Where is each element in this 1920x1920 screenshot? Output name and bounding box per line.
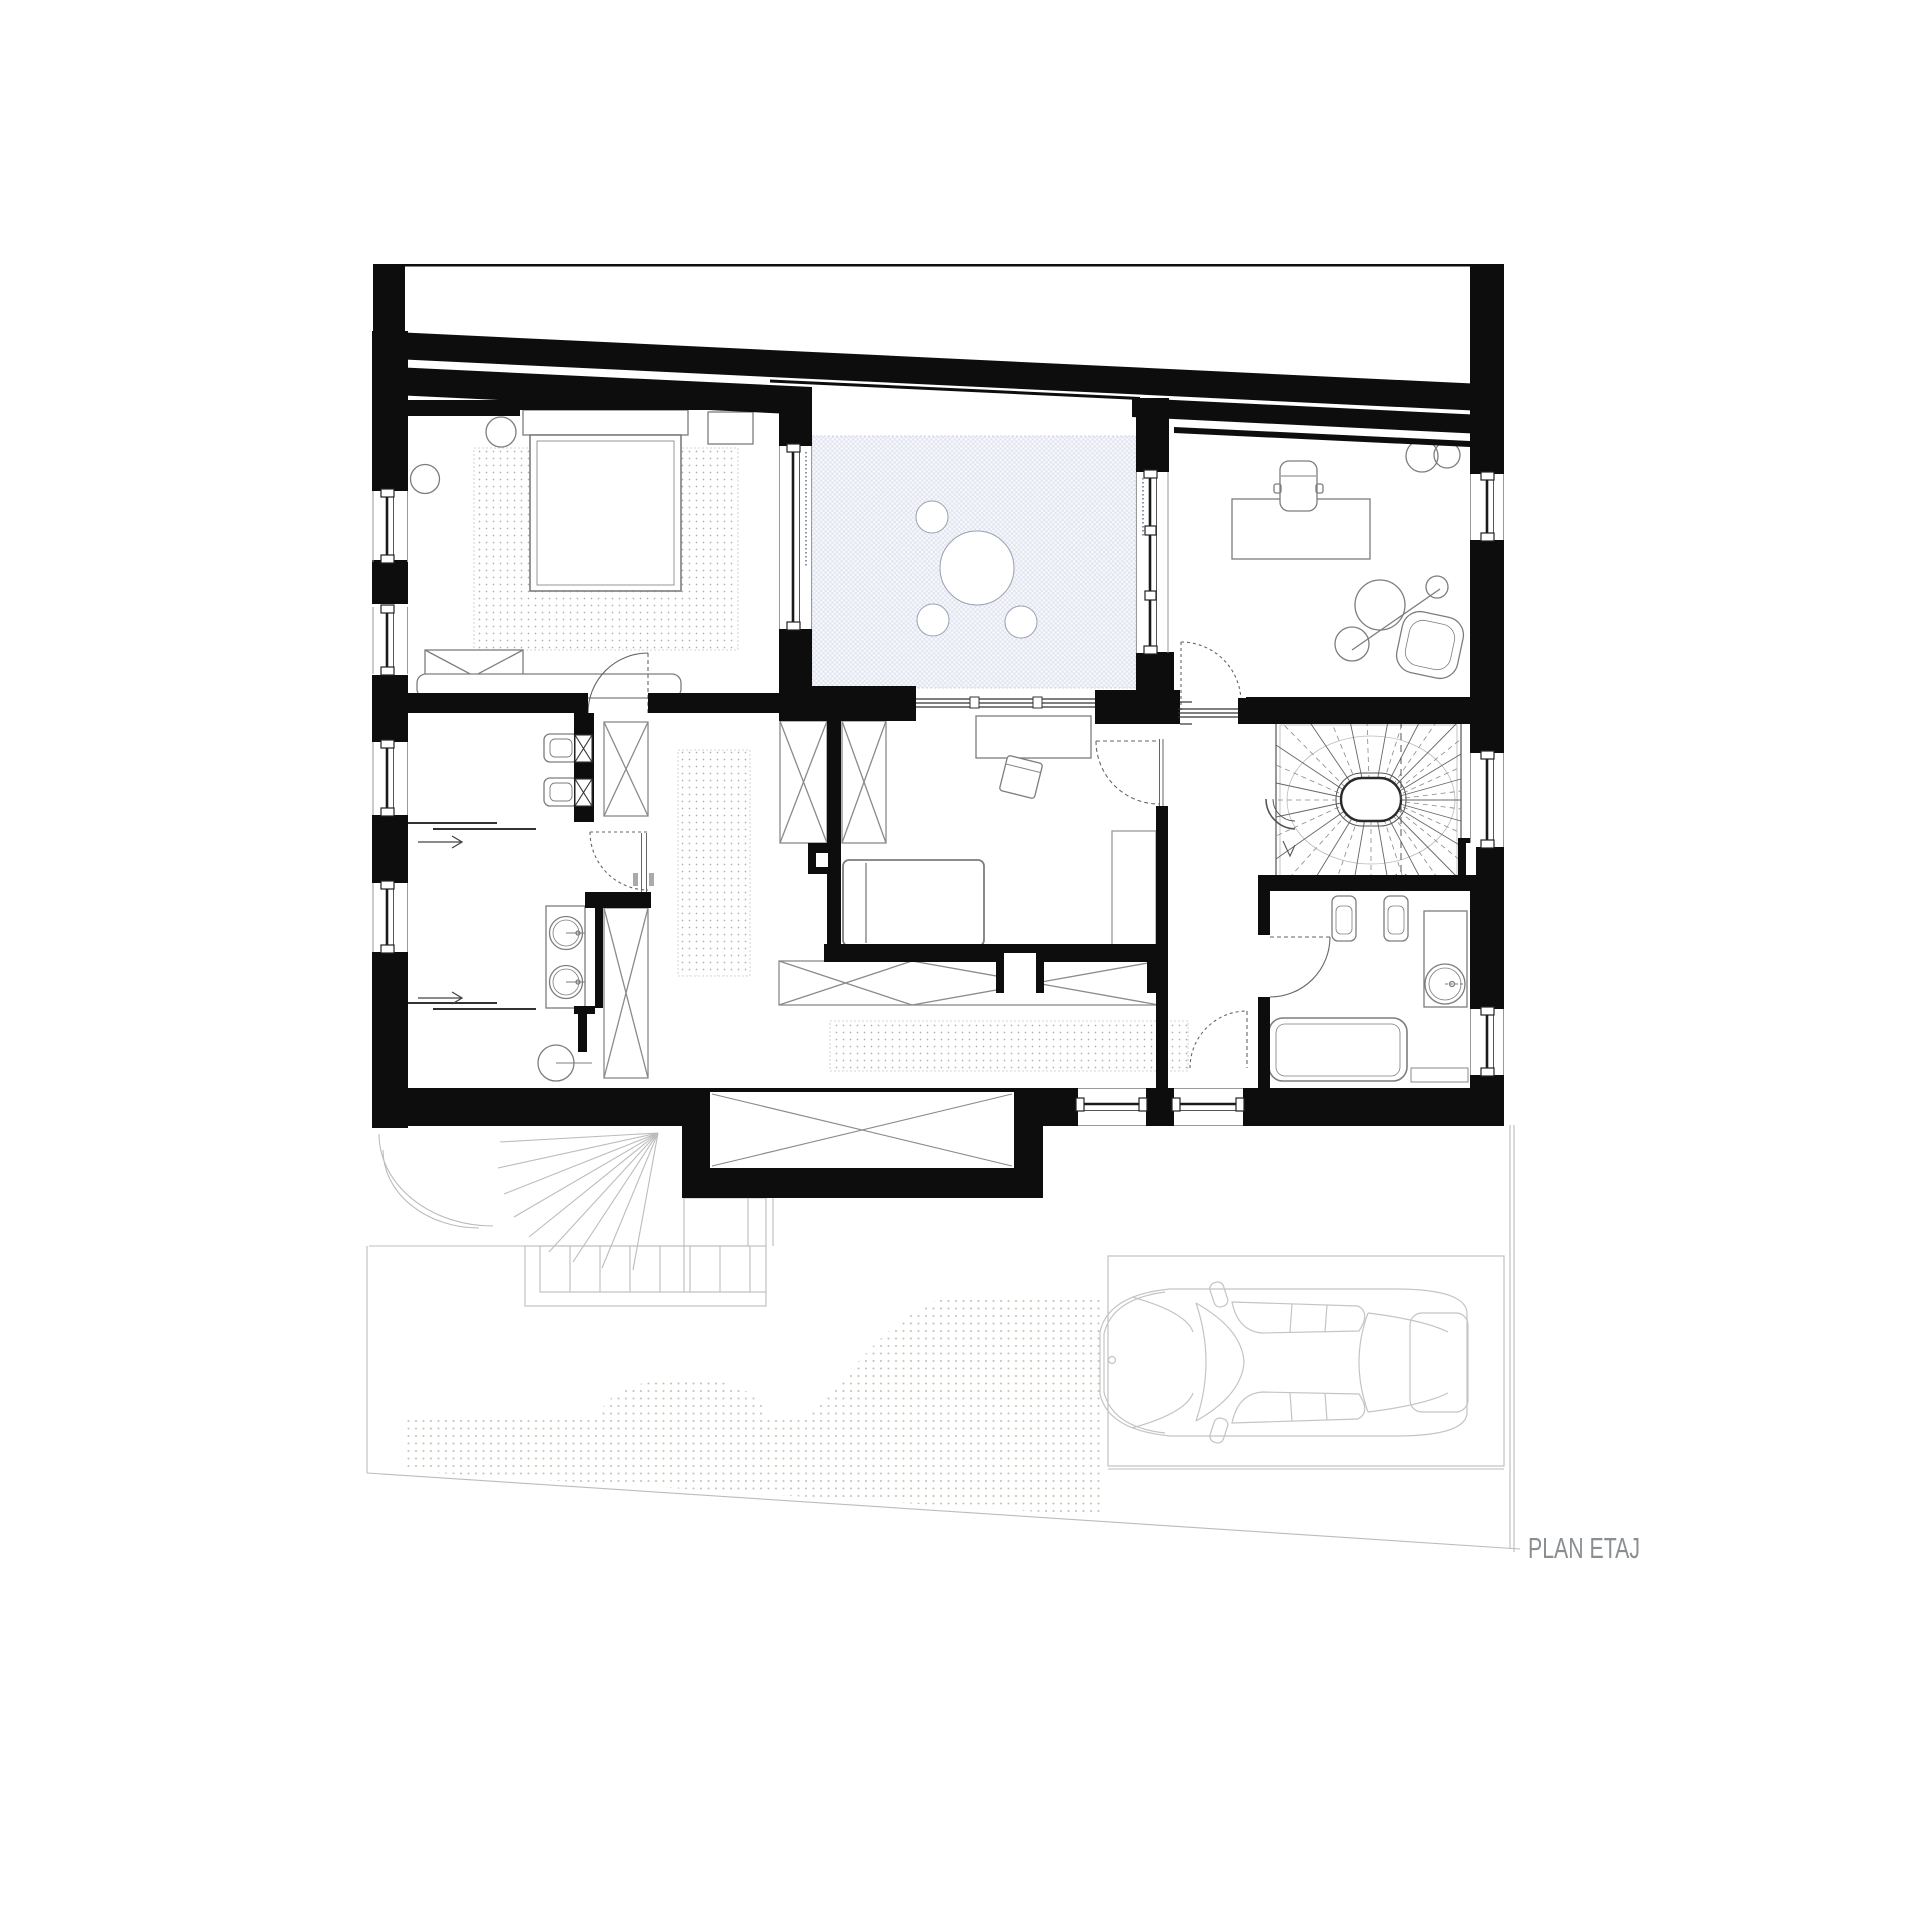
svg-text:PLAN ETAJ: PLAN ETAJ: [1528, 1533, 1640, 1565]
